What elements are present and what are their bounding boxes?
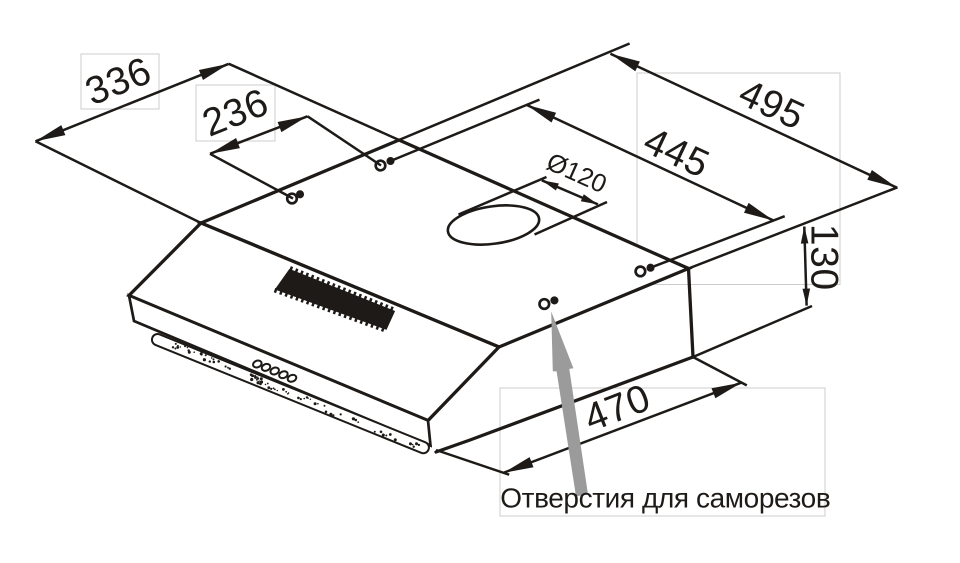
svg-text:Отверстия для саморезов: Отверстия для саморезов — [500, 483, 830, 514]
svg-text:130: 130 — [802, 224, 845, 291]
